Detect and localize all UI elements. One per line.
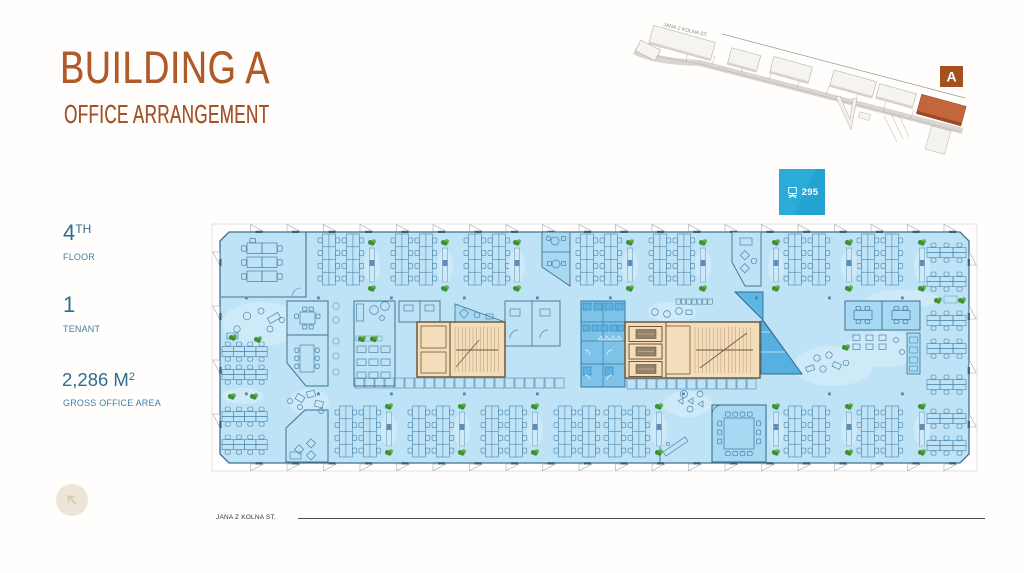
svg-text:A: A [946, 69, 956, 85]
